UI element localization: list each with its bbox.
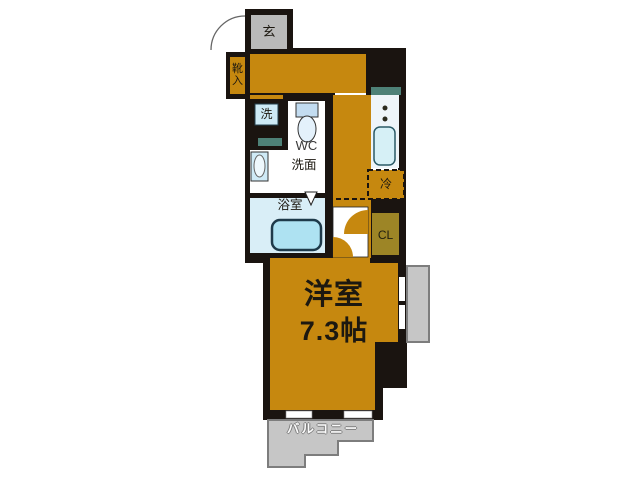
hall-floor (250, 54, 366, 93)
side-balcony (407, 266, 429, 342)
entrance-door-arc-icon (211, 16, 245, 50)
washroom-counter (258, 138, 282, 146)
wall-right (398, 55, 406, 267)
label-entrance: 玄 (251, 15, 287, 49)
label-washer: 洗 (255, 104, 278, 125)
floor-plan: 玄 靴入 洗 WC 洗面 浴室 冷 CL 洋室 7.3帖 バルコニー (0, 0, 640, 480)
label-main-room: 洋室 (272, 278, 396, 312)
stove-burner-icon (383, 106, 388, 111)
sink-basin-icon (254, 155, 265, 177)
window (399, 305, 405, 329)
window (399, 277, 405, 301)
floor-plan-drawing (0, 0, 640, 480)
window (286, 411, 312, 418)
label-washroom: 洗面 (283, 159, 325, 173)
wall-room-corner-block (372, 340, 407, 388)
label-refrigerator: 冷 (368, 171, 404, 198)
toilet-tank-icon (296, 103, 318, 117)
label-shoe-cabinet: 靴入 (229, 58, 246, 94)
label-balcony: バルコニー (274, 423, 372, 437)
label-closet: CL (376, 217, 395, 253)
label-main-room-size: 7.3帖 (272, 315, 396, 347)
label-wc: WC (288, 139, 325, 152)
washer-nook-floor (250, 95, 283, 99)
stove-burner-icon (383, 117, 388, 122)
label-bathroom: 浴室 (268, 199, 312, 212)
window (344, 411, 372, 418)
bathtub-icon (272, 220, 321, 250)
kitchen-sink-icon (374, 127, 395, 165)
kitchen-backsplash (371, 87, 401, 95)
